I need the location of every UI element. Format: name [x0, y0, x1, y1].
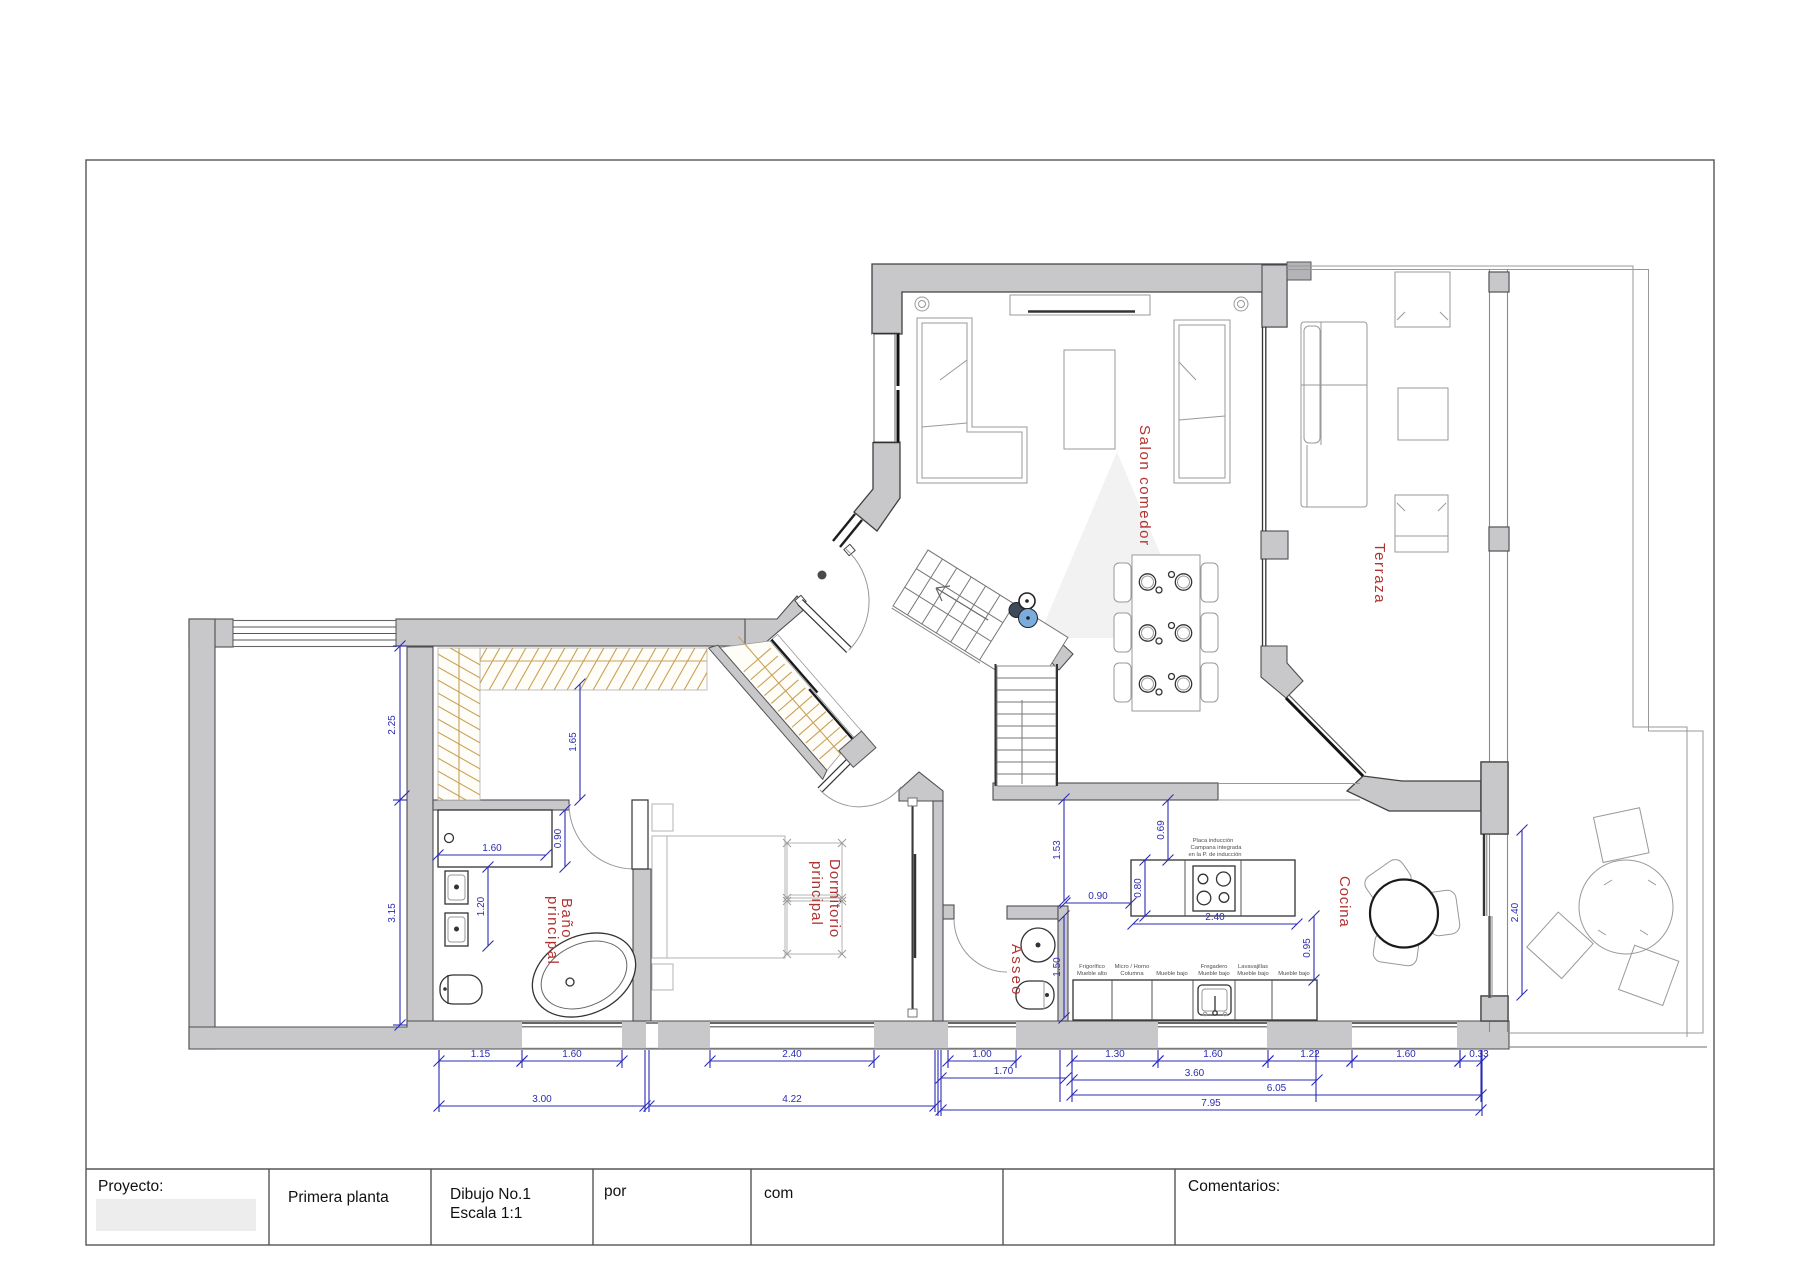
svg-text:Asseo: Asseo — [1008, 944, 1025, 997]
svg-text:1.30: 1.30 — [1105, 1049, 1125, 1060]
svg-text:en la P. de inducción: en la P. de inducción — [1188, 852, 1241, 858]
svg-text:3.15: 3.15 — [387, 903, 398, 923]
svg-text:1.70: 1.70 — [994, 1066, 1014, 1077]
svg-text:principal: principal — [544, 896, 561, 965]
svg-text:Salon comedor: Salon comedor — [1136, 425, 1153, 547]
svg-text:0.90: 0.90 — [1088, 891, 1108, 902]
svg-text:1.60: 1.60 — [1396, 1049, 1416, 1060]
svg-text:7.95: 7.95 — [1201, 1098, 1221, 1109]
svg-text:Mueble bajo: Mueble bajo — [1278, 971, 1310, 977]
svg-text:Cocina: Cocina — [1336, 876, 1353, 928]
svg-text:3.00: 3.00 — [532, 1094, 552, 1105]
svg-text:2.25: 2.25 — [387, 715, 398, 735]
svg-text:Columna: Columna — [1120, 971, 1144, 977]
svg-text:1.60: 1.60 — [1203, 1049, 1223, 1060]
svg-text:com: com — [764, 1185, 793, 1202]
svg-text:Mueble alto: Mueble alto — [1077, 971, 1107, 977]
svg-text:4.22: 4.22 — [782, 1094, 802, 1105]
svg-text:Mueble bajo: Mueble bajo — [1198, 971, 1230, 977]
svg-text:Lavavajillas: Lavavajillas — [1238, 964, 1268, 970]
svg-text:2.40: 2.40 — [782, 1049, 802, 1060]
svg-text:Primera planta: Primera planta — [288, 1189, 389, 1206]
svg-text:1.65: 1.65 — [568, 732, 579, 752]
svg-text:Dibujo No.1: Dibujo No.1 — [450, 1186, 531, 1203]
svg-text:Proyecto:: Proyecto: — [98, 1178, 163, 1195]
svg-text:0.95: 0.95 — [1302, 938, 1313, 958]
svg-text:0.33: 0.33 — [1469, 1049, 1489, 1060]
svg-text:Campana integrada: Campana integrada — [1191, 845, 1243, 851]
svg-text:principal: principal — [808, 861, 825, 926]
svg-text:Terraza: Terraza — [1371, 543, 1388, 604]
svg-text:1.00: 1.00 — [972, 1049, 992, 1060]
svg-text:1.60: 1.60 — [562, 1049, 582, 1060]
svg-text:0.90: 0.90 — [553, 828, 564, 848]
svg-text:3.60: 3.60 — [1185, 1068, 1205, 1079]
svg-text:1.60: 1.60 — [482, 843, 502, 854]
svg-text:1.22: 1.22 — [1300, 1049, 1320, 1060]
svg-text:1.20: 1.20 — [476, 896, 487, 916]
svg-text:0.69: 0.69 — [1156, 820, 1167, 840]
svg-text:0.80: 0.80 — [1133, 878, 1144, 898]
svg-text:2.40: 2.40 — [1510, 902, 1521, 922]
svg-text:Fregadero: Fregadero — [1201, 964, 1228, 970]
svg-text:Mueble bajo: Mueble bajo — [1156, 971, 1188, 977]
svg-text:Dormitorio: Dormitorio — [826, 859, 843, 938]
svg-text:1.50: 1.50 — [1052, 957, 1063, 977]
svg-text:1.53: 1.53 — [1052, 840, 1063, 860]
svg-text:1.15: 1.15 — [471, 1049, 491, 1060]
svg-text:6.05: 6.05 — [1267, 1083, 1287, 1094]
svg-text:Mueble bajo: Mueble bajo — [1237, 971, 1269, 977]
svg-text:Placa inducción: Placa inducción — [1193, 838, 1234, 844]
svg-text:Frigorífico: Frigorífico — [1079, 964, 1105, 970]
svg-text:Escala 1:1: Escala 1:1 — [450, 1205, 522, 1222]
svg-text:Micro / Horno: Micro / Horno — [1115, 964, 1150, 970]
svg-text:Comentarios:: Comentarios: — [1188, 1178, 1280, 1195]
svg-text:por: por — [604, 1183, 626, 1200]
svg-text:2.40: 2.40 — [1205, 912, 1225, 923]
